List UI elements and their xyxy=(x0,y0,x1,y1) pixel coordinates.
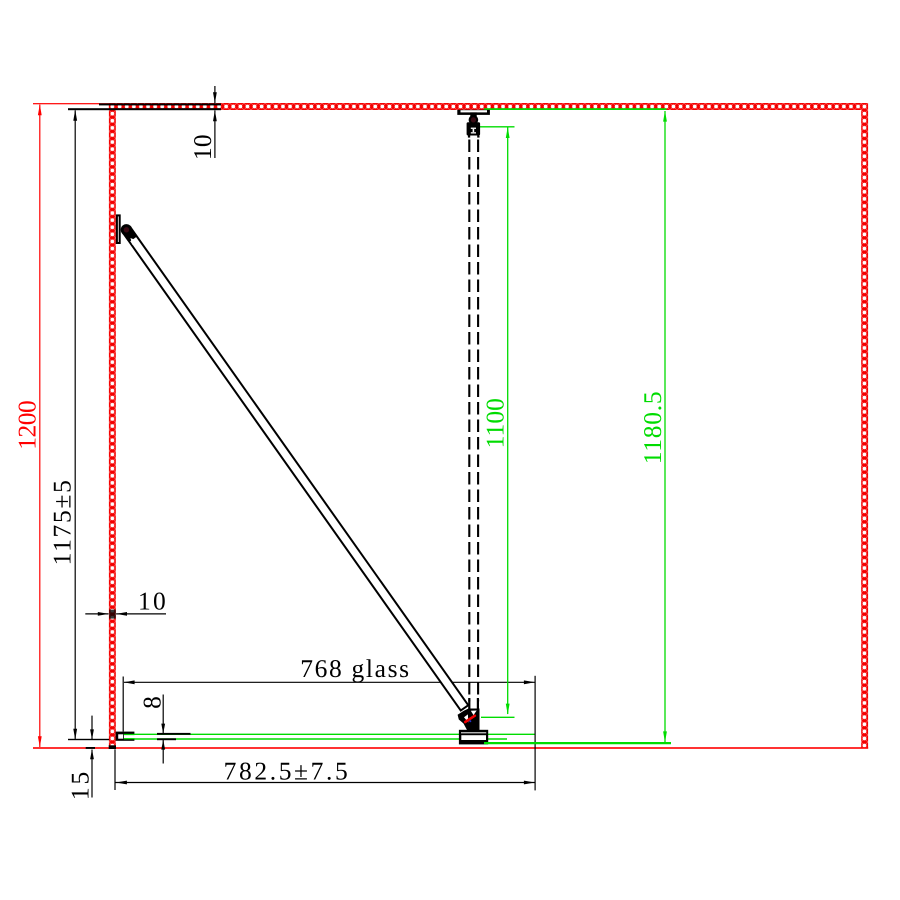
svg-text:1100: 1100 xyxy=(480,398,509,448)
svg-text:10: 10 xyxy=(188,134,217,160)
svg-text:1200: 1200 xyxy=(13,401,42,450)
svg-text:768 glass: 768 glass xyxy=(300,654,410,683)
svg-text:8: 8 xyxy=(137,696,166,709)
svg-text:782.5±7.5: 782.5±7.5 xyxy=(224,756,351,785)
svg-text:1175±5: 1175±5 xyxy=(48,478,77,565)
svg-text:10: 10 xyxy=(138,587,168,616)
svg-text:1180.5: 1180.5 xyxy=(638,391,667,465)
svg-text:15: 15 xyxy=(66,769,95,800)
